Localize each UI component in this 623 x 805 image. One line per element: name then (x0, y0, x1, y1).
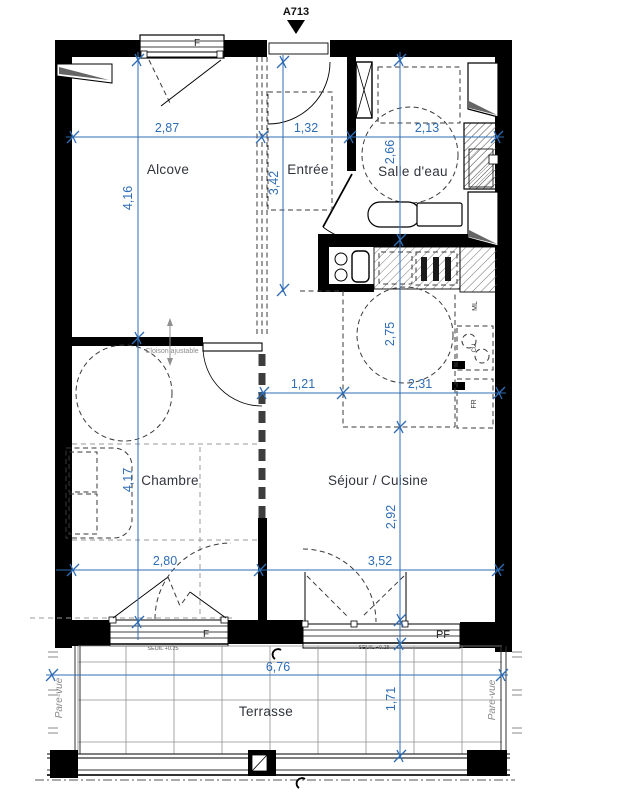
air-duct (356, 62, 372, 118)
pare-vue-left-label: Pare-vue (54, 677, 65, 718)
room-label-entree: Entrée (287, 162, 329, 177)
dim-alcove-width: 2,87 (155, 121, 179, 135)
pillow-symbol (69, 494, 97, 534)
dim-entree-height: 3,42 (267, 171, 281, 195)
dim-entree-width: 1,32 (294, 121, 318, 135)
dim-sejour-height: 2,92 (384, 505, 398, 529)
room-label-sejour-cuisine: Séjour / Cuisine (328, 473, 428, 488)
floor-plan-drawing: A713 (0, 0, 623, 800)
dim-passage-width: 1,21 (291, 377, 315, 391)
dim-sejour-width: 3,52 (368, 554, 392, 568)
dim-terrasse-depth: 1,71 (384, 687, 398, 711)
technical-shaft (464, 123, 498, 189)
dim-chambre-height: 4,17 (121, 468, 135, 492)
kitchen-sink-unit (335, 251, 369, 282)
chambre-window-label: F (203, 629, 209, 640)
bathroom-turning-circle (362, 107, 458, 203)
dim-terrasse-width: 6,76 (266, 660, 290, 674)
room-label-terrasse: Terrasse (239, 704, 293, 719)
dimension-lines: 2,87 1,32 2,13 4,16 4,17 3,42 2,66 2,75 … (46, 52, 508, 762)
pare-vue-right-label: Pare-vue (487, 679, 498, 720)
cooking-appliance-label: CU (472, 344, 478, 353)
entree-zone (257, 57, 332, 337)
pillow-symbol (69, 452, 97, 492)
room-label-chambre: Chambre (141, 473, 199, 488)
dim-cuisine-height: 2,75 (383, 322, 397, 346)
alcove-window: F (140, 35, 224, 106)
shower-tray (378, 67, 460, 123)
room-label-alcove: Alcove (147, 162, 189, 177)
kitchen-counter (374, 247, 497, 292)
lot-number-label: A713 (283, 6, 309, 18)
cloison-ajustable-label: Cloison ajustable (145, 348, 198, 355)
fridge-label: FR (471, 399, 478, 408)
toilet (368, 202, 462, 227)
entrance-door (267, 40, 330, 124)
dim-chambre-width: 2,80 (153, 554, 177, 568)
dim-alcove-height: 4,16 (121, 186, 135, 210)
sejour-window-label: PF (436, 629, 450, 641)
alcove-window-label: F (194, 38, 200, 49)
north-pointer-icon (287, 20, 305, 34)
dim-cuisine-width: 2,31 (408, 377, 432, 391)
washing-machine-label: ML (472, 301, 479, 311)
room-label-salle-deau: Salle d'eau (378, 164, 448, 179)
dim-salle-deau-height: 2,66 (383, 140, 397, 164)
lot-marker: A713 (283, 6, 309, 34)
floor-plan-page: A713 (0, 0, 623, 800)
kitchen-zone-outline (300, 291, 455, 427)
bathroom-door (323, 174, 352, 240)
chambre-turning-circle (76, 345, 172, 441)
kitchen-turning-circle (357, 287, 453, 383)
dim-salle-deau-width: 2,13 (415, 121, 439, 135)
chambre-door-leaf (203, 343, 262, 351)
downspout-icon (273, 649, 281, 659)
